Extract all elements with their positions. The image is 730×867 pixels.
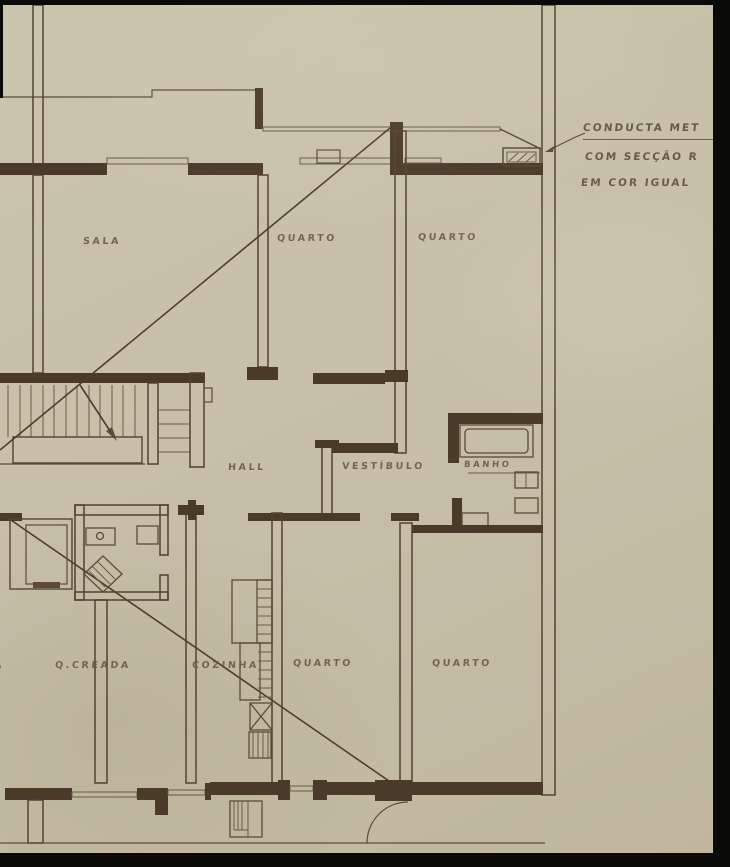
floor-plan-scan: SALA QUARTO QUARTO HALL VESTÍBULO BANHO …: [0, 0, 730, 867]
annotation-underline: [583, 139, 713, 140]
room-label-quarto-1: QUARTO: [277, 233, 338, 244]
stair-treads: [8, 385, 135, 437]
room-label-hall: HALL: [228, 462, 267, 473]
annotation-line-3: EM COR IGUAL: [580, 177, 690, 189]
wall-hall-vestibulo: [322, 443, 332, 518]
room-label-creada: Q.CREADA: [55, 660, 132, 671]
vestibulo-north-wall: [332, 443, 398, 453]
diagonal-upper: [0, 128, 390, 450]
east-party-wall: [542, 5, 555, 795]
vent-box: [230, 801, 262, 837]
wall-creada-west: [95, 600, 107, 783]
scan-edge-top: [0, 0, 730, 5]
window-recess: [168, 790, 205, 795]
scan-edge-bottom: [0, 853, 730, 867]
wall-sala-quarto1: [258, 175, 268, 367]
boundary-pier: [255, 88, 263, 129]
wc-icon: [97, 533, 104, 540]
room-label-cozinha: COZINHA: [192, 660, 260, 671]
leader-arrowhead: [545, 146, 554, 152]
room-label-vestibulo: VESTÍBULO: [342, 461, 426, 472]
stair-steps-side: [158, 410, 190, 452]
bathroom-right: [448, 413, 543, 533]
room-label-sala: SALA: [83, 236, 122, 247]
room-label-quarto-2: QUARTO: [418, 232, 479, 243]
annotation-line-2: COM SECÇÃO R: [584, 151, 699, 163]
south-facade: [0, 780, 545, 843]
window-recess: [290, 786, 313, 791]
wc-cistern-icon: [86, 528, 115, 545]
window-recess: [107, 158, 188, 164]
window-recess: [72, 792, 137, 797]
corridor-walls: [0, 440, 419, 521]
quarto1-south-wall: [313, 373, 385, 384]
room-label-quarto-4: QUARTO: [432, 658, 493, 669]
facade-notch: [317, 150, 340, 163]
north-facade: [0, 122, 543, 175]
basin-icon: [137, 526, 158, 544]
wall-cozinha-quarto: [272, 513, 282, 783]
facade-pilaster: [390, 122, 403, 175]
staircase: [0, 373, 212, 467]
door-swing: [367, 802, 408, 843]
scan-edge-right: [713, 0, 730, 867]
bathroom-left: [75, 505, 168, 600]
annotation-line-1: CONDUCTA MET: [582, 122, 701, 134]
bathtub-icon: [460, 425, 533, 457]
wall-creada-cozinha: [186, 513, 196, 783]
wall-quarto1-quarto2: [395, 131, 406, 453]
room-label-quarto-3: QUARTO: [293, 658, 354, 669]
west-wall: [33, 5, 43, 373]
scan-edge-left: [0, 0, 3, 98]
duct-conducta: [503, 133, 585, 166]
room-label-banho: BANHO: [464, 460, 512, 470]
window-recess: [405, 158, 441, 163]
bidet-icon: [515, 498, 538, 513]
stair-arrowhead: [106, 427, 117, 441]
stair-landing: [13, 437, 142, 463]
wall-quarto-quarto: [400, 523, 412, 783]
elevator: [10, 519, 72, 589]
boundary-lines: [0, 88, 541, 149]
